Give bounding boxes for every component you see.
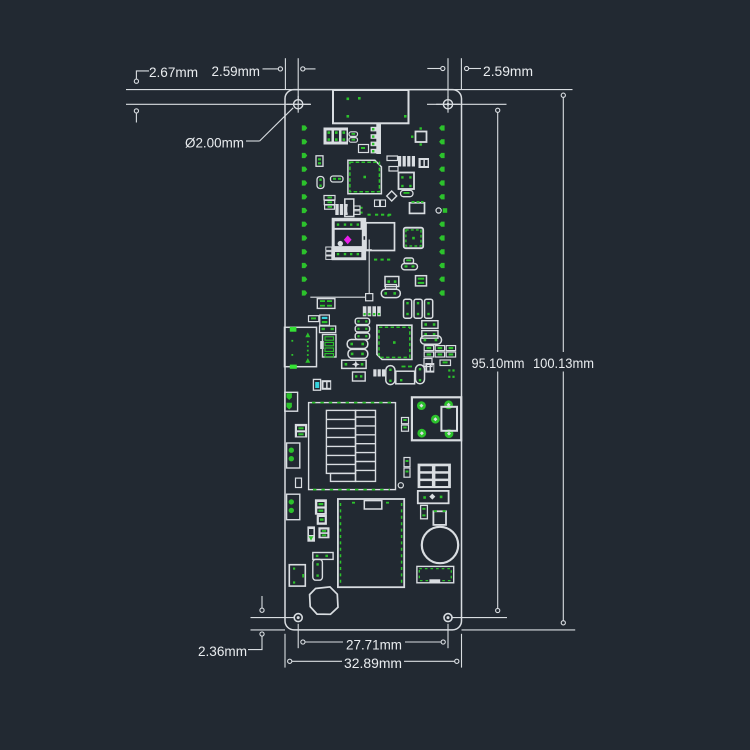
svg-text:2.36mm: 2.36mm [198, 643, 247, 659]
svg-text:27.71mm: 27.71mm [346, 637, 402, 653]
svg-text:2.59mm: 2.59mm [212, 63, 261, 79]
svg-text:2.59mm: 2.59mm [483, 63, 533, 79]
svg-text:100.13mm: 100.13mm [533, 355, 594, 371]
svg-text:2.67mm: 2.67mm [149, 64, 198, 80]
svg-text:95.10mm: 95.10mm [472, 355, 525, 371]
svg-text:Ø2.00mm: Ø2.00mm [185, 135, 244, 151]
svg-text:32.89mm: 32.89mm [344, 655, 402, 671]
